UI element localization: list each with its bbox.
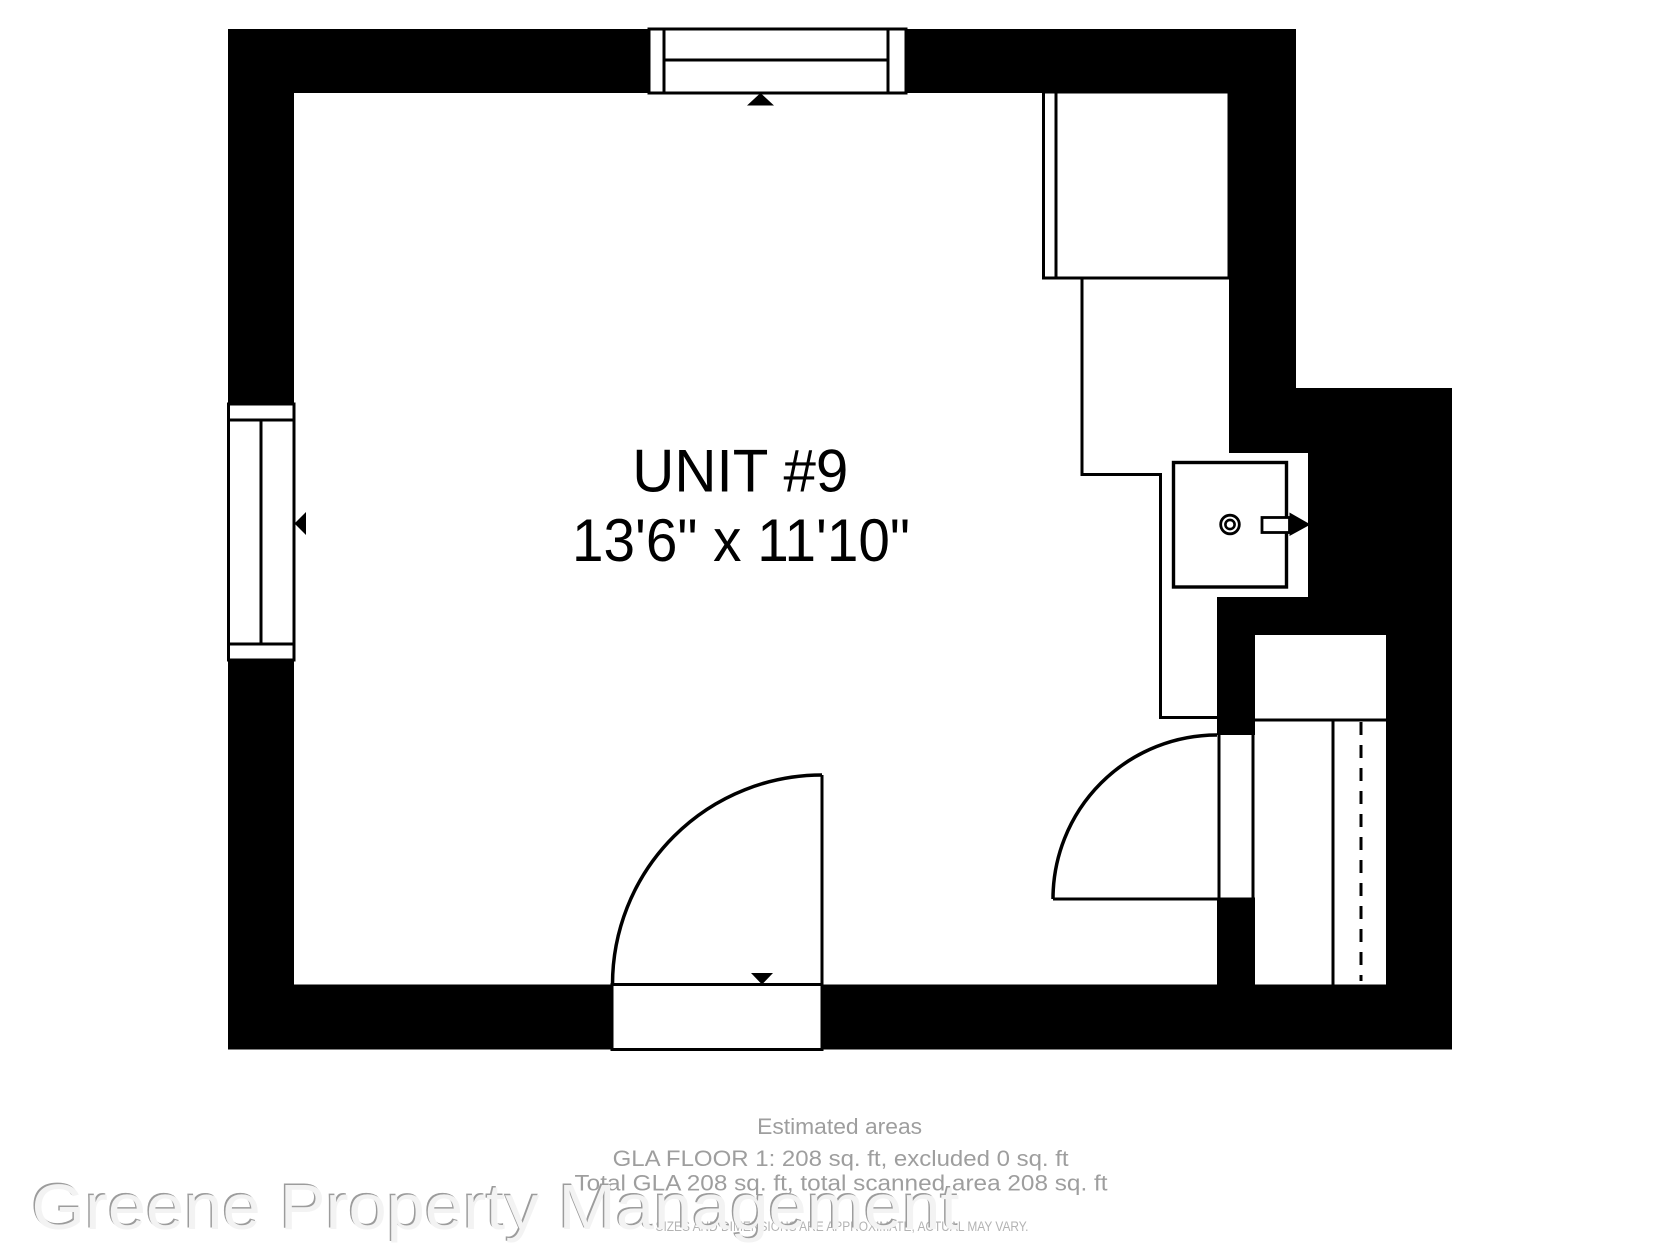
- svg-text:UNIT #9: UNIT #9: [632, 438, 848, 505]
- svg-text:Greene Property Management: Greene Property Management: [32, 1171, 960, 1243]
- svg-text:Estimated areas: Estimated areas: [757, 1114, 922, 1139]
- svg-text:13'6" x 11'10": 13'6" x 11'10": [572, 507, 910, 574]
- svg-text:GLA FLOOR 1: 208 sq. ft, exclu: GLA FLOOR 1: 208 sq. ft, excluded 0 sq. …: [613, 1146, 1069, 1171]
